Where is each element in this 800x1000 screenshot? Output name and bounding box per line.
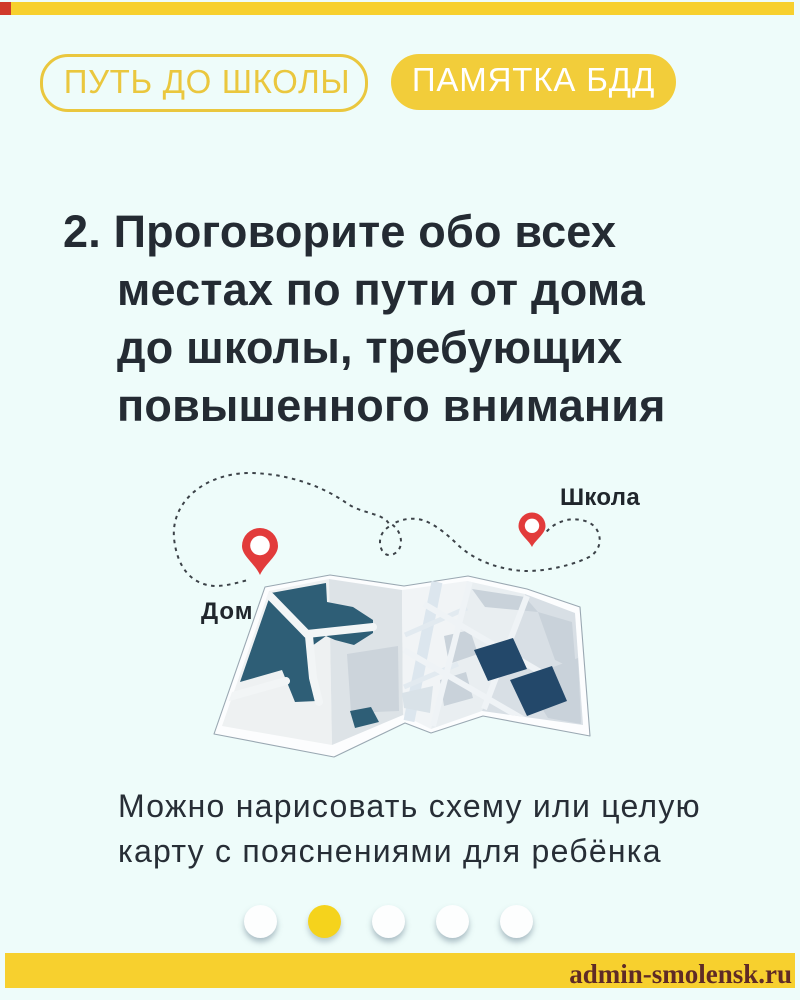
svg-text:Дом: Дом <box>201 598 254 625</box>
svg-text:Школа: Школа <box>560 484 640 511</box>
